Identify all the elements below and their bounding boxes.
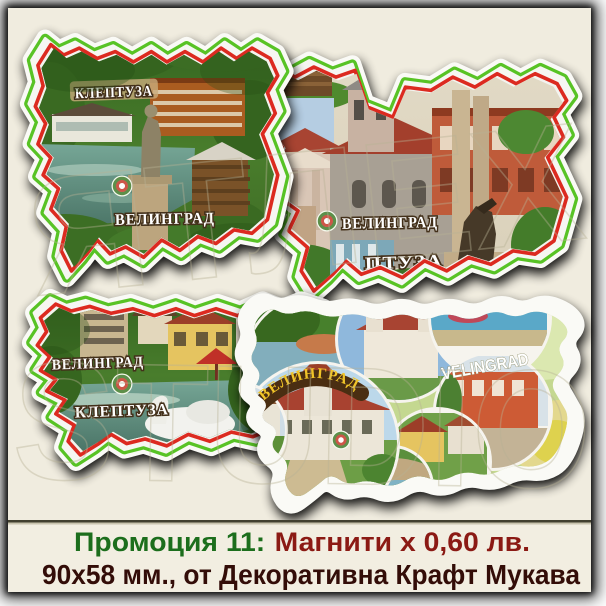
svg-text:STUDIO: STUDIO: [11, 326, 592, 524]
svg-text:Промоция 11:Магнити х 0,60 лв.: Промоция 11:Магнити х 0,60 лв.: [74, 527, 530, 557]
svg-text:90х58 мм., от Декоративна Краф: 90х58 мм., от Декоративна Крафт Мукава: [42, 559, 580, 590]
